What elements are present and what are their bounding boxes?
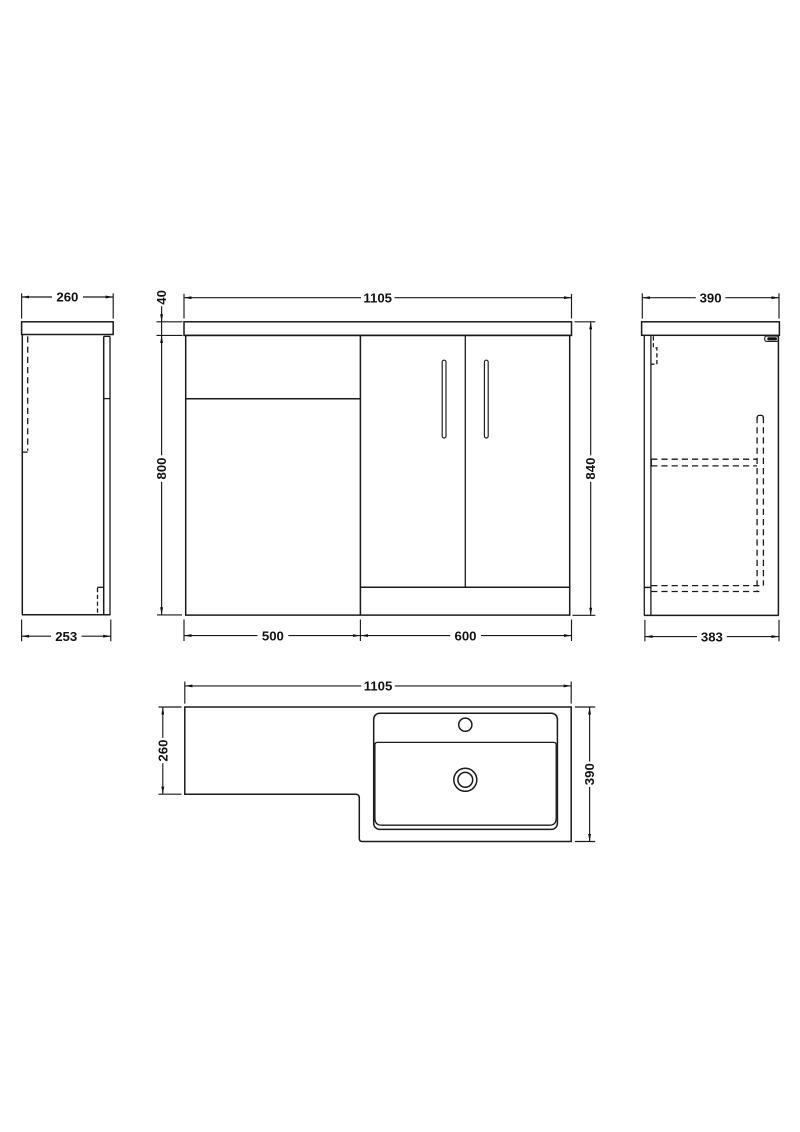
svg-text:1105: 1105	[363, 290, 392, 305]
svg-text:840: 840	[583, 458, 598, 480]
svg-text:260: 260	[56, 290, 78, 305]
svg-text:383: 383	[701, 629, 723, 644]
svg-text:500: 500	[262, 628, 284, 643]
svg-text:800: 800	[154, 457, 169, 479]
svg-text:600: 600	[454, 628, 476, 643]
svg-text:1105: 1105	[364, 679, 393, 694]
svg-text:390: 390	[700, 290, 722, 305]
svg-text:253: 253	[55, 629, 77, 644]
svg-text:40: 40	[154, 290, 169, 305]
svg-text:260: 260	[155, 740, 170, 762]
svg-text:390: 390	[582, 763, 597, 785]
